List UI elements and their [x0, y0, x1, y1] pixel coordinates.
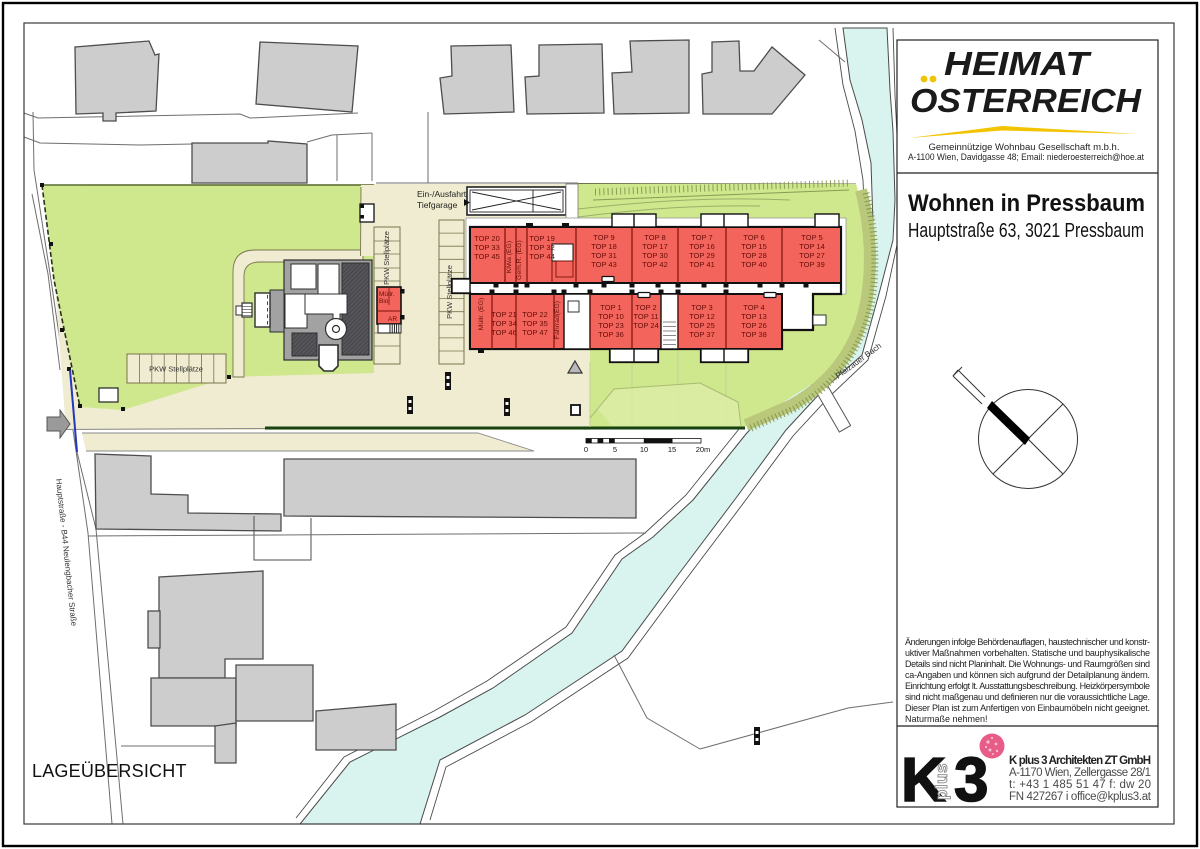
svg-text:t: +43 1 485 51 47 f: dw: t: +43 1 485 51 47 f: dw 20 [1009, 779, 1151, 791]
svg-text:TOP 20TOP 33TOP 45: TOP 20TOP 33TOP 45 [474, 234, 500, 261]
svg-text:TOP 22TOP 35TOP 47: TOP 22TOP 35TOP 47 [522, 310, 548, 337]
svg-text:Müllr. (EG): Müllr. (EG) [478, 298, 485, 330]
svg-text:TOP 8TOP 17TOP 30TOP 42: TOP 8TOP 17TOP 30TOP 42 [642, 233, 668, 269]
svg-text:TOP 7TOP 16TOP 29TOP 41: TOP 7TOP 16TOP 29TOP 41 [689, 233, 715, 269]
svg-text:K plus 3 Architekten ZT GmbH: K plus 3 Architekten ZT GmbH [1009, 755, 1151, 767]
svg-text:Ein-/Ausfahrt: Ein-/Ausfahrt [417, 189, 467, 199]
svg-text:TOP 19TOP 32TOP 44: TOP 19TOP 32TOP 44 [529, 234, 555, 261]
svg-text:TOP 1TOP 10TOP 23TOP 36: TOP 1TOP 10TOP 23TOP 36 [598, 303, 624, 339]
svg-text:LAGEÜBERSICHT: LAGEÜBERSICHT [32, 761, 187, 781]
svg-text:15: 15 [668, 445, 676, 454]
svg-text:5: 5 [613, 445, 617, 454]
svg-text:uktiver Maßnahmen vorbehalte: uktiver Maßnahmen vorbehalten. Statische… [905, 648, 1150, 658]
svg-text:Details sind nicht Planinhalt: Details sind nicht Planinhalt. Die Wohnu… [905, 659, 1150, 669]
svg-text:Naturmaße nehmen!: Naturmaße nehmen! [905, 714, 988, 724]
svg-text:FN 427267 i office@kplus3.: FN 427267 i office@kplus3.at [1009, 791, 1152, 803]
svg-text:0: 0 [584, 445, 588, 454]
svg-text:TOP 4TOP 13TOP 26TOP 38: TOP 4TOP 13TOP 26TOP 38 [741, 303, 767, 339]
svg-text:TOP 3TOP 12TOP 25TOP 37: TOP 3TOP 12TOP 25TOP 37 [689, 303, 715, 339]
svg-text:Änderungen infolge Behördenauf: Änderungen infolge Behördenauflagen, hau… [905, 637, 1150, 647]
svg-text:TOP 2TOP 11TOP 24: TOP 2TOP 11TOP 24 [633, 303, 659, 330]
svg-text:3: 3 [954, 746, 988, 815]
svg-text:10: 10 [640, 445, 648, 454]
svg-text:Müllr.: Müllr. [379, 291, 395, 298]
svg-text:Hauptstraße 63, 3021 Pressbaum: Hauptstraße 63, 3021 Pressbaum [908, 219, 1144, 242]
svg-text:TOP 6TOP 15TOP 28TOP 40: TOP 6TOP 15TOP 28TOP 40 [741, 233, 767, 269]
svg-text:A-1170 Wien, Zellergasse 28/1: A-1170 Wien, Zellergasse 28/1 [1009, 767, 1151, 779]
svg-text:OSTERREICH: OSTERREICH [910, 82, 1142, 119]
svg-text:Fahrrad(EG): Fahrrad(EG) [554, 301, 561, 339]
svg-text:ca-Angaben und können sich: ca-Angaben und können sich aufgrund der … [905, 670, 1150, 680]
svg-text:PKW Stellplätze: PKW Stellplätze [382, 231, 391, 285]
svg-text:HEIMAT: HEIMAT [944, 45, 1092, 82]
svg-text:A-1100 Wien, Davidgasse 48; Em: A-1100 Wien, Davidgasse 48; Email: niede… [908, 152, 1144, 163]
svg-text:TOP 5TOP 14TOP 27TOP 39: TOP 5TOP 14TOP 27TOP 39 [799, 233, 825, 269]
svg-text:TOP 21TOP 34TOP 46: TOP 21TOP 34TOP 46 [491, 310, 517, 337]
svg-text:Einrichtung erfolgt lt. Aussta: Einrichtung erfolgt lt. Ausstattungsbesc… [905, 681, 1150, 691]
svg-text:PKW Stellplätze: PKW Stellplätze [149, 365, 203, 374]
svg-text:Dieser Plan ist zum Anfert: Dieser Plan ist zum Anfertigen von Einba… [905, 703, 1150, 713]
svg-text:Gem.R. (EG): Gem.R. (EG) [516, 240, 523, 280]
svg-text:KlWa (EG): KlWa (EG) [506, 241, 513, 273]
svg-text:Bio: Bio [379, 298, 389, 305]
svg-text:Wohnen in Pressbaum: Wohnen in Pressbaum [908, 190, 1145, 217]
svg-text:TOP 9TOP 18TOP 31TOP 43: TOP 9TOP 18TOP 31TOP 43 [591, 233, 617, 269]
svg-text:20m: 20m [696, 445, 711, 454]
svg-text:plus: plus [932, 763, 951, 800]
svg-text:sind nicht maßgenau und def: sind nicht maßgenau und definieren nur d… [905, 692, 1150, 702]
svg-text:Tiefgarage: Tiefgarage [417, 200, 458, 210]
svg-text:AR: AR [388, 316, 397, 323]
